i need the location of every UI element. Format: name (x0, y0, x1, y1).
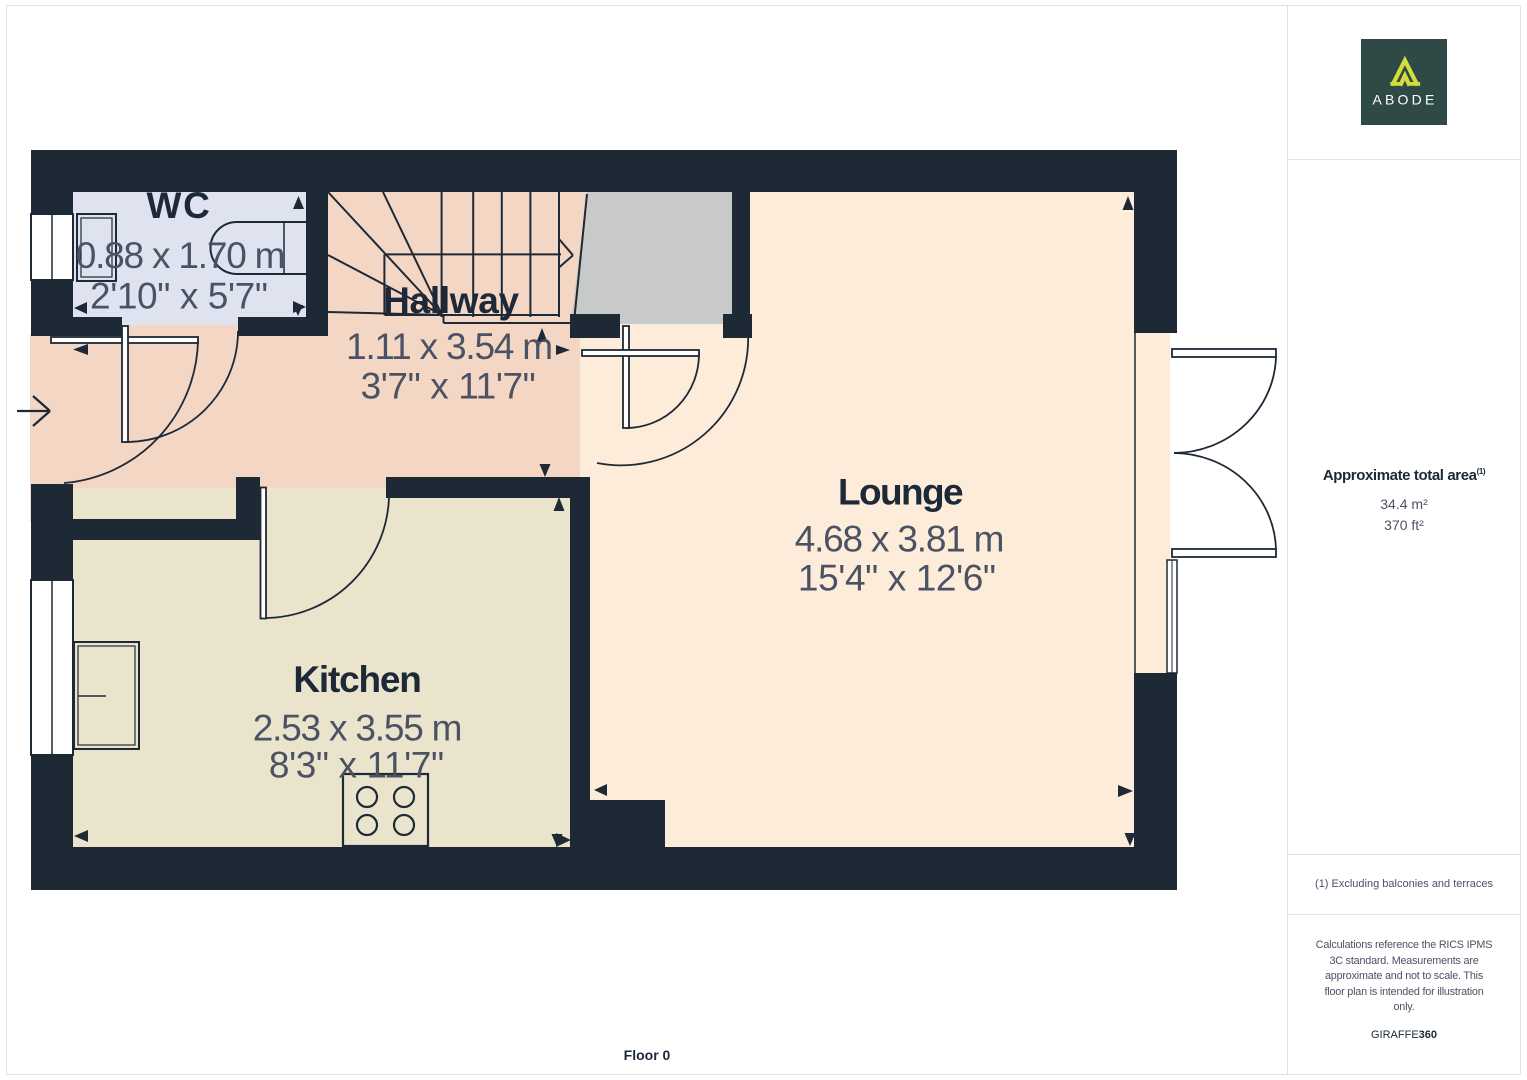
svg-text:2'10" x 5'7": 2'10" x 5'7" (90, 276, 268, 317)
svg-text:WC: WC (146, 185, 211, 226)
svg-text:Floor 0: Floor 0 (624, 1047, 671, 1063)
svg-text:8'3" x 11'7": 8'3" x 11'7" (269, 745, 444, 786)
svg-text:4.68 x 3.81 m: 4.68 x 3.81 m (795, 519, 1004, 560)
svg-text:Kitchen: Kitchen (293, 659, 420, 700)
svg-text:Lounge: Lounge (838, 472, 963, 513)
svg-text:2.53 x 3.55 m: 2.53 x 3.55 m (253, 708, 462, 749)
svg-text:0.88 x 1.70 m: 0.88 x 1.70 m (76, 235, 285, 276)
svg-text:ABODE: ABODE (1372, 92, 1437, 108)
svg-text:1.11 x 3.54 m: 1.11 x 3.54 m (346, 326, 552, 367)
svg-text:15'4" x 12'6": 15'4" x 12'6" (798, 558, 996, 599)
svg-text:Hallway: Hallway (383, 280, 519, 321)
svg-text:3'7" x 11'7": 3'7" x 11'7" (361, 366, 536, 407)
